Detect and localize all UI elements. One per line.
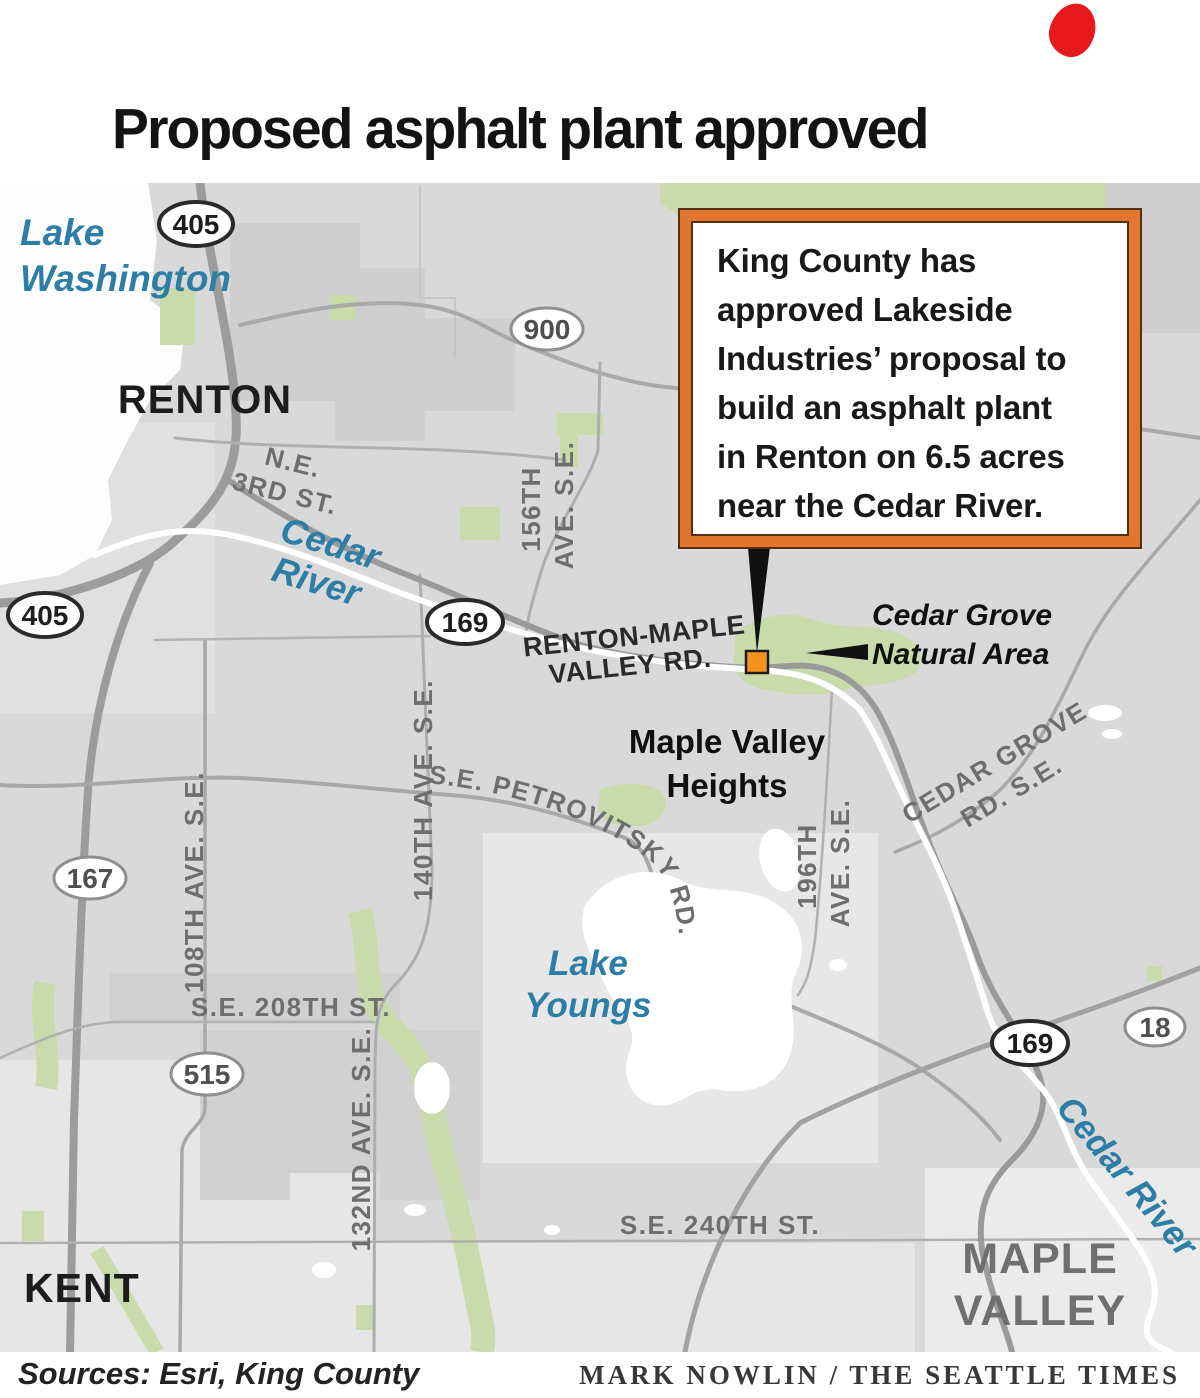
news-graphic: Proposed asphalt plant approved <box>0 0 1200 1398</box>
callout-line: King County has <box>717 236 1111 285</box>
shield-167: 167 <box>54 857 126 899</box>
shield-405-north: 405 <box>159 202 233 246</box>
shield-405-north-label: 405 <box>173 209 220 240</box>
196th-ave-label-2: AVE. S.E. <box>825 799 855 928</box>
cedar-grove-natural-area-label-2: Natural Area <box>872 638 1049 671</box>
shield-18-label: 18 <box>1139 1012 1170 1043</box>
196th-ave-label-1: 196TH <box>792 823 822 909</box>
page-title: Proposed asphalt plant approved <box>112 96 927 162</box>
156th-ave-label-2: AVE. S.E. <box>549 441 579 570</box>
shield-169-north-label: 169 <box>442 607 489 638</box>
140th-ave-label: 140TH AVE. S.E. <box>408 679 438 901</box>
artist-credit: MARK NOWLIN / THE SEATTLE TIMES <box>579 1360 1180 1391</box>
asphalt-plant-site-marker <box>746 651 768 673</box>
lake-washington-label-2: Washington <box>20 258 231 299</box>
shield-169-north: 169 <box>427 600 503 644</box>
city-label-maple-valley-1: MAPLE <box>962 1235 1118 1283</box>
shield-405-south-label: 405 <box>22 600 69 631</box>
lake-washington-label-1: Lake <box>20 212 104 253</box>
shield-169-south: 169 <box>992 1021 1068 1065</box>
city-label-maple-valley-2: VALLEY <box>954 1287 1126 1335</box>
shield-167-label: 167 <box>67 863 114 894</box>
maple-valley-heights-label-1: Maple Valley <box>629 723 826 760</box>
callout-text: King County has approved Lakeside Indust… <box>691 221 1129 530</box>
lake-youngs-label-1: Lake <box>548 944 628 983</box>
shield-405-south: 405 <box>8 593 82 637</box>
callout-box: King County has approved Lakeside Indust… <box>680 210 1140 547</box>
callout-line: build an asphalt plant <box>717 383 1111 432</box>
208th-st-label: S.E. 208TH ST. <box>191 992 391 1022</box>
sources-credit: Sources: Esri, King County <box>18 1356 419 1392</box>
108th-ave-label: 108TH AVE. S.E. <box>179 771 209 993</box>
callout-line: Industries’ proposal to <box>717 334 1111 383</box>
callout-line: in Renton on 6.5 acres <box>717 432 1111 481</box>
240th-st-label: S.E. 240TH ST. <box>620 1210 820 1240</box>
maple-valley-heights-label-2: Heights <box>666 767 787 804</box>
lake-youngs-label-2: Youngs <box>524 986 651 1025</box>
city-label-renton: RENTON <box>118 378 292 422</box>
shield-515: 515 <box>171 1053 243 1095</box>
132nd-ave-label: 132ND AVE. S.E. <box>346 1027 376 1252</box>
shield-18: 18 <box>1125 1008 1185 1046</box>
callout-line: approved Lakeside <box>717 285 1111 334</box>
city-label-kent: KENT <box>24 1265 140 1311</box>
shield-900-label: 900 <box>524 314 571 345</box>
shield-900: 900 <box>511 308 583 350</box>
shield-169-south-label: 169 <box>1007 1028 1054 1059</box>
red-marker-blob <box>1043 0 1101 62</box>
shield-515-label: 515 <box>184 1059 231 1090</box>
callout-line: near the Cedar River. <box>717 481 1111 530</box>
156th-ave-label-1: 156TH <box>516 466 546 552</box>
cedar-grove-natural-area-label-1: Cedar Grove <box>872 599 1052 632</box>
